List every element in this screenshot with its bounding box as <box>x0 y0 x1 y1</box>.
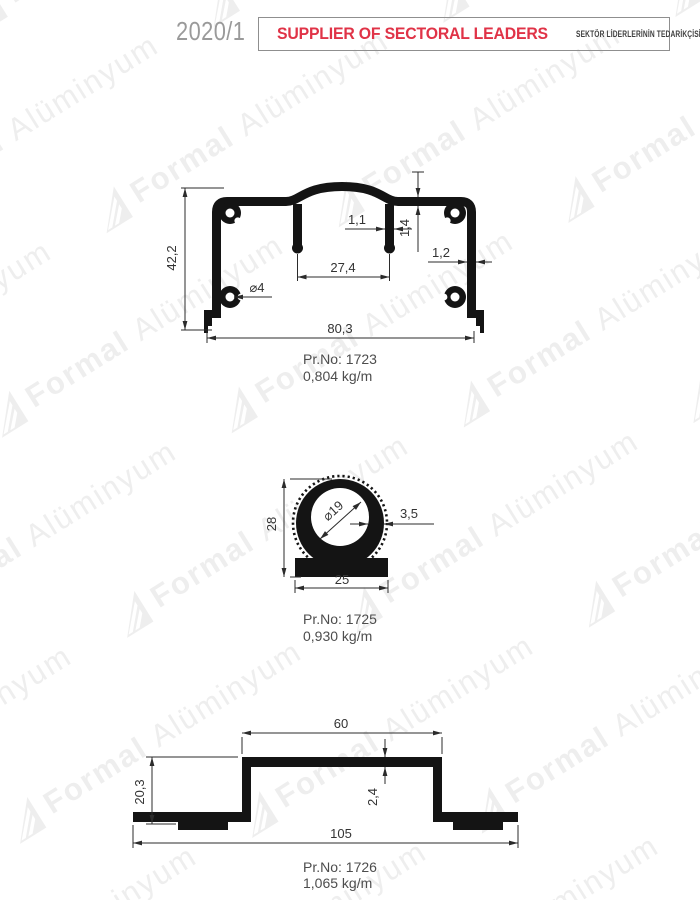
banner-text-tr: SEKTÖR LİDERLERİNİN TEDARİKÇİSİ <box>576 29 700 40</box>
dim-top-width-1726: 60 <box>242 716 442 754</box>
dim-label-wall-1726: 2,4 <box>365 788 380 806</box>
banner-text-en: SUPPLIER OF SECTORAL LEADERS <box>277 24 548 44</box>
dim-label-top-width-1726: 60 <box>334 716 348 731</box>
profile-1725-drawing: 28 ⌀19 3,5 25 Pr.No: 1725 0,930 kg <box>264 476 434 644</box>
profile-weight-1725: 0,930 kg/m <box>303 628 372 644</box>
screw-boss-top-right <box>444 202 466 224</box>
profile-number-1723: Pr.No: 1723 <box>303 351 377 367</box>
profile-1723-drawing: 42,2 80,3 27,4 1,1 <box>164 172 492 384</box>
dim-wall-right-1723: 1,2 <box>428 245 492 264</box>
banner-box: SUPPLIER OF SECTORAL LEADERS SEKTÖR LİDE… <box>258 17 670 51</box>
technical-drawings: 42,2 80,3 27,4 1,1 <box>0 0 700 900</box>
profile-1726-shape <box>133 757 518 830</box>
dim-label-wall-1725: 3,5 <box>400 506 418 521</box>
catalog-page: Formal AlüminyumFormal AlüminyumFormal A… <box>0 0 700 900</box>
profile-number-1725: Pr.No: 1725 <box>303 611 377 627</box>
dim-label-wall-right-1723: 1,2 <box>432 245 450 260</box>
dim-label-height-1726: 20,3 <box>132 779 147 804</box>
profile-weight-1726: 1,065 kg/m <box>303 875 372 891</box>
dim-label-inner-width-1723: 27,4 <box>330 260 355 275</box>
dim-label-hole-dia-1723: ⌀4 <box>249 280 264 295</box>
dim-wall-1726: 2,4 <box>365 739 387 806</box>
profile-1725-shape <box>293 476 388 577</box>
dim-label-width-1725: 25 <box>335 572 349 587</box>
dim-label-wall-right-top-1723: 1,4 <box>397 219 412 237</box>
dim-label-height-1723: 42,2 <box>164 245 179 270</box>
dim-label-width-1726: 105 <box>330 826 352 841</box>
dim-label-wall-top-1723: 1,1 <box>348 212 366 227</box>
dim-wall-right-top-1723: 1,4 <box>397 172 424 252</box>
page-header: 2020/1 SUPPLIER OF SECTORAL LEADERS SEKT… <box>0 0 700 60</box>
dim-hole-dia-1723: ⌀4 <box>234 280 272 299</box>
catalog-number: 2020/1 <box>176 16 245 47</box>
dim-inner-width-1723: 27,4 <box>298 254 390 281</box>
dim-width-1723: 80,3 <box>207 321 474 343</box>
screw-boss-top-left <box>219 202 241 224</box>
profile-1726-drawing: 60 20,3 2,4 105 Pr.No: 1726 1,065 <box>132 716 518 891</box>
dim-label-width-1723: 80,3 <box>327 321 352 336</box>
screw-boss-bottom-right <box>441 286 466 308</box>
profile-number-1726: Pr.No: 1726 <box>303 859 377 875</box>
profile-weight-1723: 0,804 kg/m <box>303 368 372 384</box>
dim-label-height-1725: 28 <box>264 517 279 531</box>
